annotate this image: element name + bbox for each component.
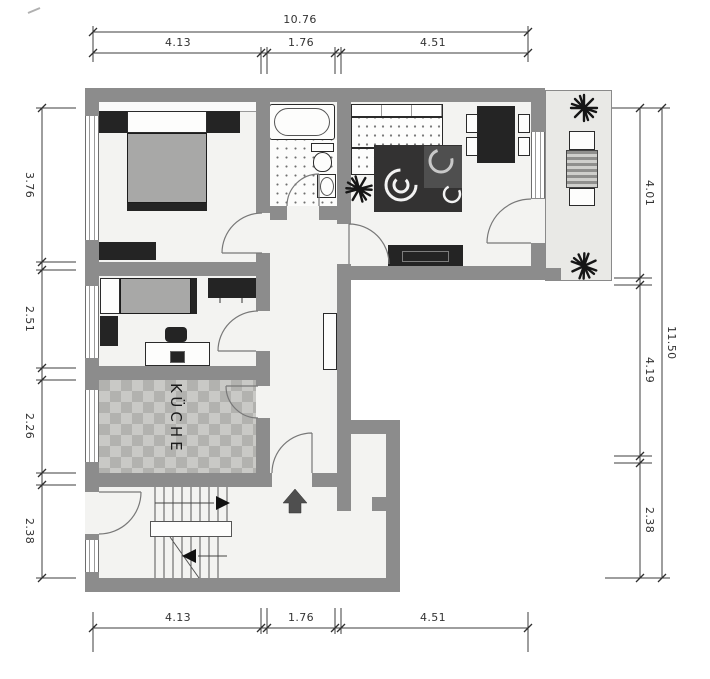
dining-table — [477, 106, 515, 163]
bathtub-icon — [269, 104, 335, 140]
toilet-tank-icon — [311, 143, 334, 152]
single-bed-foot — [191, 278, 197, 314]
stair-landing — [150, 521, 232, 537]
scan-artifact — [28, 8, 40, 13]
dim-right-total: 11.50 — [664, 308, 678, 378]
sink-basin — [320, 177, 334, 196]
desk-chair — [165, 327, 187, 342]
dining-chair — [466, 137, 478, 156]
single-bed — [120, 278, 191, 314]
wall-kitchen-east-upper — [256, 380, 270, 386]
tv-sideboard — [388, 245, 463, 267]
double-bed — [127, 133, 207, 203]
kitchen-window — [85, 390, 99, 462]
dim-left-seg-2: 2.51 — [22, 284, 36, 354]
second-room-window — [85, 286, 99, 358]
wall-bath-south-right — [319, 206, 337, 220]
wall-bedroom-south — [85, 262, 270, 276]
dim-bottom-seg-1: 4.13 — [148, 611, 208, 624]
toilet-icon — [313, 152, 332, 172]
wardrobe-right — [207, 111, 240, 133]
tv-sideboard-inset — [402, 251, 449, 262]
wall-top — [85, 88, 545, 102]
second-room-wardrobe — [208, 278, 256, 298]
bedroom-dresser — [99, 242, 156, 260]
wall-kitchen-east-lower — [256, 418, 270, 473]
dim-bottom-seg-3: 4.51 — [403, 611, 463, 624]
dim-top-seg-1: 4.13 — [148, 36, 208, 49]
wall-smallroom-east — [386, 420, 400, 592]
balcony-table — [566, 150, 598, 188]
wall-kitchen-south — [85, 473, 272, 487]
hall-closet — [323, 313, 337, 370]
dim-right-seg-1: 4.01 — [642, 158, 656, 228]
wardrobe-left — [99, 111, 127, 133]
wall-smallroom-door-stub-right — [372, 497, 386, 511]
dim-right-seg-3: 2.38 — [642, 485, 656, 555]
bedroom-window — [85, 116, 99, 240]
wall-living-south — [337, 266, 545, 280]
dim-left-seg-1: 3.76 — [22, 150, 36, 220]
dim-right-seg-2: 4.19 — [642, 335, 656, 405]
wall-bedroom-east — [256, 102, 270, 213]
desk-monitor — [170, 351, 185, 363]
single-bed-pillow — [100, 278, 120, 314]
balcony-window — [531, 132, 545, 198]
wall-kitchen-north — [85, 366, 270, 380]
dining-chair — [518, 137, 530, 156]
dining-chair — [466, 114, 478, 133]
balcony-chair-top — [569, 131, 595, 150]
dim-top-seg-2: 1.76 — [271, 36, 331, 49]
wall-balcony-stub — [545, 268, 561, 280]
wall-smallroom-door-stub-left — [337, 497, 351, 511]
dim-left-seg-4: 2.38 — [22, 496, 36, 566]
second-room-dresser — [100, 316, 118, 346]
wall-entry-stub — [312, 473, 337, 487]
balcony-chair-bottom — [569, 188, 595, 206]
wall-secondroom-east-upper — [256, 276, 270, 311]
stairwell-window — [85, 540, 99, 572]
wall-bottom — [85, 578, 400, 592]
kitchen-label: KÜCHE — [167, 383, 185, 475]
dim-left-seg-3: 2.26 — [22, 391, 36, 461]
wall-hall-east-upper — [337, 102, 351, 224]
wall-smallroom-west — [337, 434, 351, 497]
sink-icon — [317, 174, 336, 198]
wall-secondroom-east-lower — [256, 351, 270, 366]
dim-bottom-seg-2: 1.76 — [271, 611, 331, 624]
sofa-seat — [351, 117, 443, 148]
bed-headboard — [127, 111, 207, 133]
rug — [374, 145, 462, 212]
dim-top-seg-3: 4.51 — [403, 36, 463, 49]
floor-plan: KÜCHE 10.76 4.13 1.76 4.51 4.13 1.76 4.5… — [0, 0, 710, 679]
wall-bath-south-left — [270, 206, 287, 220]
dim-top-total: 10.76 — [270, 13, 330, 26]
dining-chair — [518, 114, 530, 133]
bed-footboard — [127, 203, 207, 211]
wall-hall-east-lower — [337, 264, 351, 434]
bathtub-basin — [274, 108, 330, 136]
sofa-back — [351, 104, 443, 117]
